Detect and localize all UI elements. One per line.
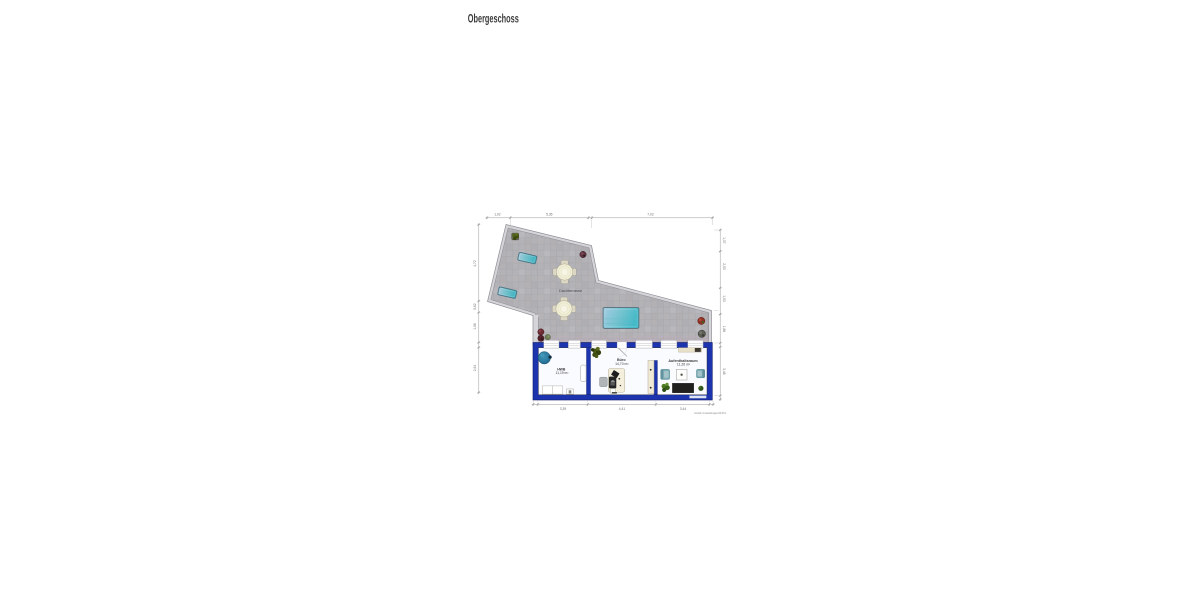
svg-text:2,94: 2,94 [473,365,477,372]
svg-text:7,02: 7,02 [647,213,654,217]
svg-text:2,53: 2,53 [722,263,726,270]
svg-text:Obergeschoss: Obergeschoss [468,14,519,26]
svg-text:Dachterrasse: Dachterrasse [559,288,582,293]
svg-text:1,96: 1,96 [473,323,477,330]
svg-text:1,02: 1,02 [494,213,501,217]
svg-text:3,39: 3,39 [560,407,567,411]
svg-text:4,72: 4,72 [473,260,477,267]
svg-text:3,44: 3,44 [680,407,687,411]
svg-text:3,48: 3,48 [722,368,726,375]
svg-text:11,19 m²: 11,19 m² [556,371,570,375]
svg-text:1,86: 1,86 [722,326,726,333]
svg-text:5,35: 5,35 [546,213,553,217]
svg-text:1,37: 1,37 [722,237,726,244]
svg-text:0,62: 0,62 [473,303,477,310]
svg-text:14,70 m²: 14,70 m² [615,362,629,366]
svg-text:4,41: 4,41 [619,407,626,411]
svg-text:Erstellt mit HausDesigner3D Pr: Erstellt mit HausDesigner3D Prof. [695,411,727,415]
svg-text:1,53: 1,53 [722,295,726,302]
svg-text:11,26 m²: 11,26 m² [677,363,691,367]
